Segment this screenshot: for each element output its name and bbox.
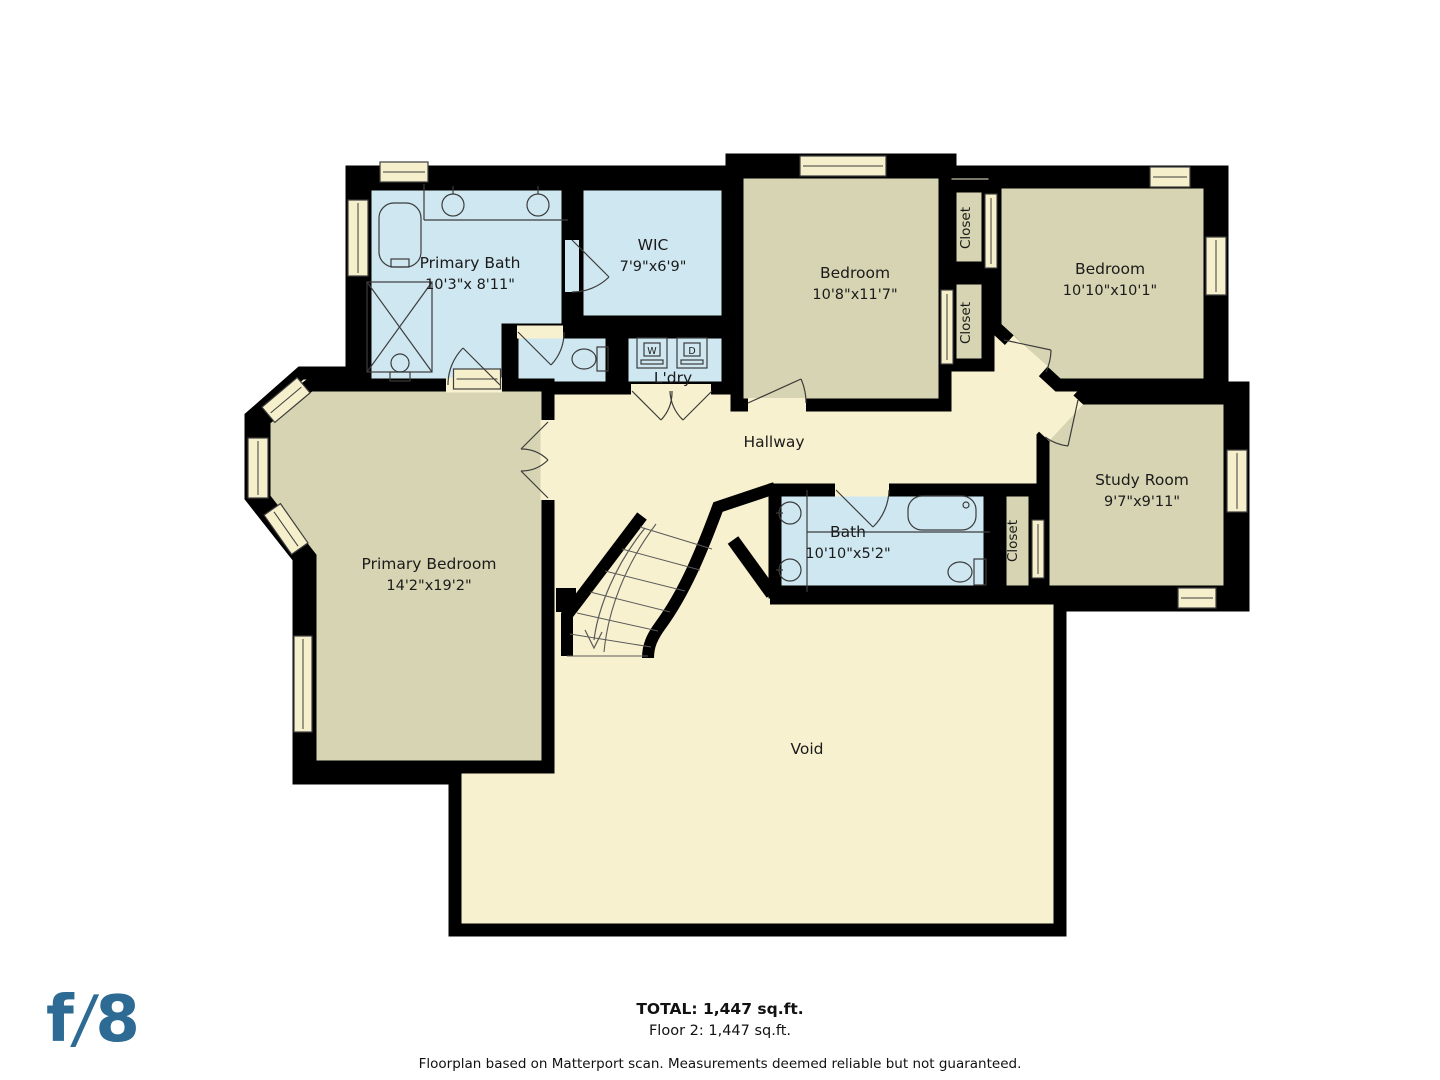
label-primary-bath: Primary Bath [420,254,521,272]
label-bath: Bath [830,523,866,541]
dims-bedroom-1: 10'8"x11'7" [812,287,897,303]
door-opening [517,326,563,339]
floor-area-text: Floor 2: 1,447 sq.ft. [0,1023,1440,1039]
label-study-room: Study Room [1095,471,1189,489]
label-dryer: D [688,346,695,357]
label-bedroom-2: Bedroom [1075,260,1145,278]
label-primary-bedroom: Primary Bedroom [362,555,497,573]
floorplan-drawing: Primary Bath10'3"x 8'11"WIC7'9"x6'9"L'dr… [0,0,1440,1080]
logo-eight: 8 [95,983,138,1057]
dims-wic: 7'9"x6'9" [620,259,687,275]
dims-primary-bath: 10'3"x 8'11" [425,277,515,293]
label-wic: WIC [638,236,669,254]
label-bedroom-1: Bedroom [820,264,890,282]
label-hallway: Hallway [743,433,804,451]
disclaimer-text: Floorplan based on Matterport scan. Meas… [0,1056,1440,1072]
label-closet-2: Closet [958,302,974,344]
label-closet-1: Closet [958,207,974,249]
label-closet-3: Closet [1005,520,1021,562]
label-laundry: L'dry [654,369,692,387]
label-void: Void [790,740,823,758]
dims-study-room: 9'7"x9'11" [1104,494,1180,510]
dims-bedroom-2: 10'10"x10'1" [1063,283,1157,299]
label-washer: W [647,346,657,357]
door-opening [565,240,579,292]
door-opening [748,398,806,412]
total-area-text: TOTAL: 1,447 sq.ft. [0,1000,1440,1018]
door-opening [835,484,889,497]
f8-logo: f/8 [46,984,138,1056]
floorplan-page: Primary Bath10'3"x 8'11"WIC7'9"x6'9"L'dr… [0,0,1440,1080]
dims-primary-bedroom: 14'2"x19'2" [386,578,471,594]
dims-bath: 10'10"x5'2" [805,546,890,562]
